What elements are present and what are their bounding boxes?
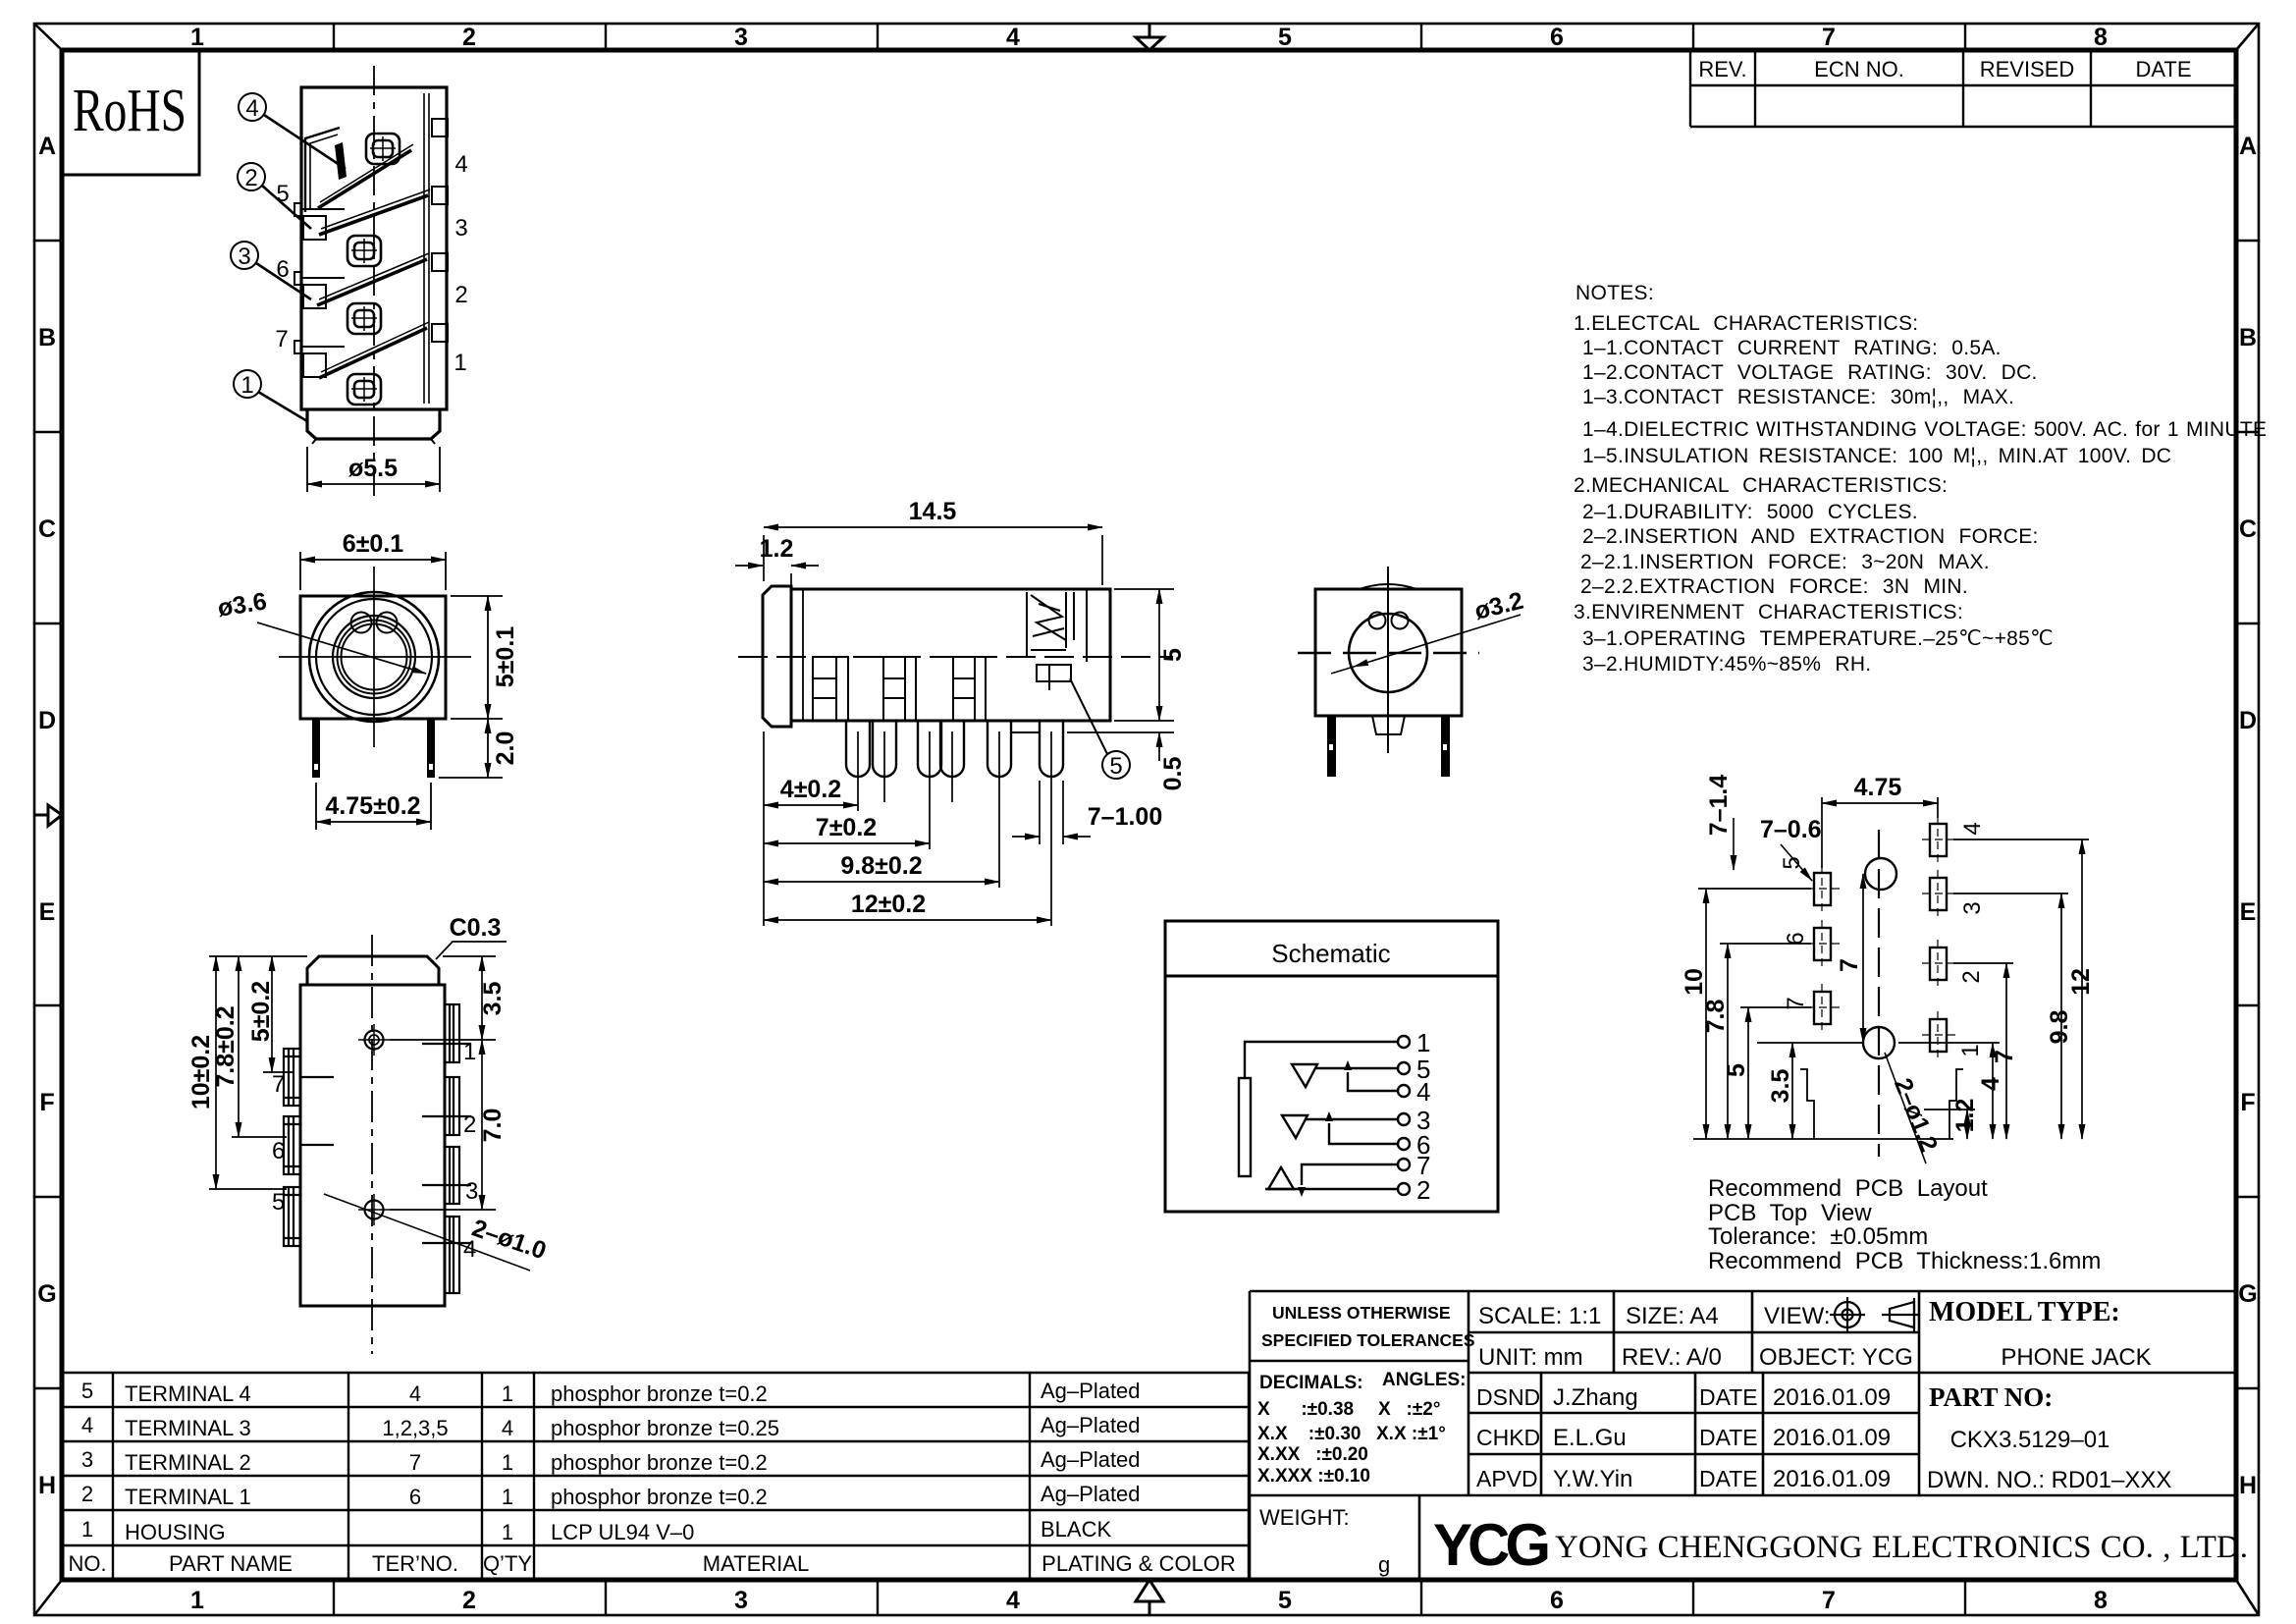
svg-text:3: 3 xyxy=(1959,901,1986,914)
svg-text:6±0.1: 6±0.1 xyxy=(343,530,403,558)
svg-text:6: 6 xyxy=(1550,24,1564,51)
svg-text:10: 10 xyxy=(1681,968,1708,996)
svg-text:9.8: 9.8 xyxy=(2046,1010,2073,1045)
svg-text:1: 1 xyxy=(190,24,204,51)
svg-text:H: H xyxy=(38,1472,56,1499)
svg-text:1: 1 xyxy=(502,1485,513,1509)
svg-text:2–1.DURABILITY: 5000 CYCLES.: 2–1.DURABILITY: 5000 CYCLES. xyxy=(1582,501,1918,523)
svg-text:phosphor bronze t=0.2: phosphor bronze t=0.2 xyxy=(551,1485,768,1509)
svg-text:4: 4 xyxy=(1977,1077,2004,1091)
svg-text:Recommend PCB Thickness:1.6m: Recommend PCB Thickness:1.6mm xyxy=(1708,1248,2101,1274)
svg-text:E: E xyxy=(2240,898,2257,926)
svg-text:2: 2 xyxy=(1958,970,1985,983)
svg-text:D: D xyxy=(38,707,56,734)
svg-text:6: 6 xyxy=(409,1485,421,1509)
svg-text:DATE: DATE xyxy=(1699,1384,1758,1410)
svg-text:Q’TY: Q’TY xyxy=(483,1551,532,1576)
svg-text:14.5: 14.5 xyxy=(909,498,957,525)
svg-text:ANGLES:: ANGLES: xyxy=(1382,1370,1467,1390)
svg-text:X :±0.38: X :±0.38 xyxy=(1257,1399,1354,1420)
svg-text:4: 4 xyxy=(1416,1077,1430,1107)
svg-text:g: g xyxy=(1378,1552,1390,1577)
svg-text:phosphor bronze t=0.25: phosphor bronze t=0.25 xyxy=(551,1416,779,1440)
svg-text:RoHS: RoHS xyxy=(73,78,187,144)
svg-text:TERMINAL 3: TERMINAL 3 xyxy=(125,1416,251,1440)
svg-text:2: 2 xyxy=(462,1587,476,1614)
svg-text:1,2,3,5: 1,2,3,5 xyxy=(382,1416,448,1440)
svg-text:7.8: 7.8 xyxy=(1702,1000,1730,1034)
svg-text:G: G xyxy=(2238,1280,2257,1308)
svg-text:D: D xyxy=(2239,707,2257,734)
svg-text:4: 4 xyxy=(1006,1587,1020,1614)
svg-text:Y.W.Yin: Y.W.Yin xyxy=(1553,1466,1632,1492)
svg-text:3.5: 3.5 xyxy=(1767,1069,1794,1104)
svg-text:7.8±0.2: 7.8±0.2 xyxy=(212,1005,240,1087)
svg-text:C: C xyxy=(2239,515,2257,543)
svg-text:6: 6 xyxy=(1550,1587,1564,1614)
svg-text:8: 8 xyxy=(2094,24,2108,51)
svg-text:WEIGHT:: WEIGHT: xyxy=(1259,1505,1350,1530)
svg-text:X.X :±1°: X.X :±1° xyxy=(1376,1424,1446,1444)
svg-text:7: 7 xyxy=(1822,24,1836,51)
svg-text:4: 4 xyxy=(81,1413,93,1437)
svg-text:ECN NO.: ECN NO. xyxy=(1814,57,1904,81)
svg-text:SIZE: A4: SIZE: A4 xyxy=(1626,1303,1719,1329)
svg-text:YCG: YCG xyxy=(1433,1512,1547,1578)
svg-text:5: 5 xyxy=(1278,24,1292,51)
svg-text:1: 1 xyxy=(502,1381,513,1406)
svg-text:F: F xyxy=(39,1089,54,1116)
svg-text:X.XXX :±0.10: X.XXX :±0.10 xyxy=(1257,1466,1370,1487)
svg-text:6: 6 xyxy=(272,1138,285,1164)
svg-text:3.ENVIRENMENT CHARACTERISTICS: 3.ENVIRENMENT CHARACTERISTICS: xyxy=(1574,601,1963,623)
svg-text:2–2.2.EXTRACTION FORCE: 3N: 2–2.2.EXTRACTION FORCE: 3N MIN. xyxy=(1580,575,1968,598)
svg-text:4.75: 4.75 xyxy=(1854,774,1902,801)
svg-text:DECIMALS:: DECIMALS: xyxy=(1259,1373,1363,1393)
svg-text:1–4.DIELECTRIC WITHSTANDING: 1–4.DIELECTRIC WITHSTANDING VOLTAGE: 500… xyxy=(1582,418,2267,441)
svg-text:Schematic: Schematic xyxy=(1271,939,1390,968)
svg-text:MATERIAL: MATERIAL xyxy=(703,1551,809,1576)
svg-text:E: E xyxy=(39,898,56,926)
svg-text:X :±2°: X :±2° xyxy=(1378,1399,1440,1420)
svg-text:4: 4 xyxy=(502,1416,513,1440)
svg-text:E.L.Gu: E.L.Gu xyxy=(1553,1425,1627,1451)
svg-text:5±0.2: 5±0.2 xyxy=(247,981,275,1042)
svg-text:VIEW:: VIEW: xyxy=(1764,1303,1831,1329)
svg-text:2: 2 xyxy=(462,24,476,51)
svg-text:7: 7 xyxy=(1836,958,1863,972)
svg-text:DSND: DSND xyxy=(1476,1384,1540,1410)
svg-text:1–1.CONTACT CURRENT RATING:: 1–1.CONTACT CURRENT RATING: 0.5A. xyxy=(1582,337,2002,359)
svg-text:2: 2 xyxy=(454,282,467,308)
svg-text:Ag–Plated: Ag–Plated xyxy=(1041,1379,1141,1403)
svg-text:3: 3 xyxy=(734,1587,748,1614)
svg-text:4: 4 xyxy=(454,151,467,178)
svg-text:7: 7 xyxy=(275,326,288,352)
svg-text:MODEL TYPE:: MODEL TYPE: xyxy=(1929,1297,2120,1327)
svg-text:7: 7 xyxy=(1991,1050,2018,1063)
svg-text:Tolerance: ±0.05mm: Tolerance: ±0.05mm xyxy=(1708,1223,1928,1250)
svg-text:HOUSING: HOUSING xyxy=(125,1520,226,1544)
svg-text:C: C xyxy=(38,515,56,543)
svg-text:7: 7 xyxy=(272,1071,285,1098)
svg-text:7–1.00: 7–1.00 xyxy=(1088,803,1162,831)
svg-text:5: 5 xyxy=(272,1189,285,1216)
svg-text:TERMINAL 4: TERMINAL 4 xyxy=(125,1381,251,1406)
svg-text:1: 1 xyxy=(1957,1044,1984,1056)
svg-text:REV.: A/0: REV.: A/0 xyxy=(1622,1344,1722,1371)
svg-text:3–1.OPERATING TEMPERATURE.–25: 3–1.OPERATING TEMPERATURE.–25℃~+85℃ xyxy=(1582,627,2054,650)
svg-text:1: 1 xyxy=(454,350,466,376)
svg-text:PART NO:: PART NO: xyxy=(1929,1382,2053,1412)
svg-text:0.5: 0.5 xyxy=(1159,757,1187,791)
svg-text:2: 2 xyxy=(81,1482,93,1506)
svg-text:PCB Top View: PCB Top View xyxy=(1708,1200,1872,1226)
svg-text:3–2.HUMIDTY:45%~85% RH.: 3–2.HUMIDTY:45%~85% RH. xyxy=(1582,653,1871,676)
svg-text:PART NAME: PART NAME xyxy=(169,1551,293,1576)
svg-text:5: 5 xyxy=(276,181,289,207)
svg-text:1–3.CONTACT RESISTANCE: 30m¦: 1–3.CONTACT RESISTANCE: 30m¦,, MAX. xyxy=(1582,386,2014,408)
svg-text:DWN. NO.: RD01–XXX: DWN. NO.: RD01–XXX xyxy=(1927,1467,2171,1493)
svg-text:REV.: REV. xyxy=(1698,57,1746,81)
svg-text:Ag–Plated: Ag–Plated xyxy=(1041,1447,1141,1472)
svg-text:7±0.2: 7±0.2 xyxy=(816,814,877,841)
svg-text:1: 1 xyxy=(502,1520,513,1544)
svg-text:5: 5 xyxy=(1723,1063,1750,1077)
svg-text:PHONE JACK: PHONE JACK xyxy=(2001,1344,2151,1371)
svg-text:1: 1 xyxy=(1416,1028,1430,1057)
svg-text:7: 7 xyxy=(1822,1587,1836,1614)
svg-text:1: 1 xyxy=(463,1039,476,1065)
svg-text:8: 8 xyxy=(2094,1587,2108,1614)
svg-text:PLATING & COLOR: PLATING & COLOR xyxy=(1041,1551,1236,1576)
svg-text:4: 4 xyxy=(245,95,258,122)
svg-text:7–1.4: 7–1.4 xyxy=(1705,775,1733,837)
svg-text:CKX3.5129–01: CKX3.5129–01 xyxy=(1950,1427,2110,1453)
svg-text:2016.01.09: 2016.01.09 xyxy=(1773,1384,1891,1411)
svg-text:ø5.5: ø5.5 xyxy=(348,455,398,482)
svg-text:APVD: APVD xyxy=(1476,1466,1538,1491)
svg-text:1: 1 xyxy=(190,1587,204,1614)
svg-text:OBJECT: YCG: OBJECT: YCG xyxy=(1759,1344,1913,1371)
svg-text:4: 4 xyxy=(1959,822,1986,835)
svg-text:2–2.INSERTION AND EXTRACTION: 2–2.INSERTION AND EXTRACTION FORCE: xyxy=(1582,525,2039,548)
svg-text:NO.: NO. xyxy=(68,1551,106,1576)
svg-text:2016.01.09: 2016.01.09 xyxy=(1773,1425,1891,1451)
svg-text:4±0.2: 4±0.2 xyxy=(780,776,841,803)
svg-text:TER’NO.: TER’NO. xyxy=(372,1551,458,1576)
svg-text:1.2: 1.2 xyxy=(1951,1099,1979,1133)
svg-text:X.X :±0.30: X.X :±0.30 xyxy=(1257,1424,1361,1444)
svg-text:A: A xyxy=(38,133,56,160)
svg-text:C0.3: C0.3 xyxy=(450,914,502,942)
svg-text:1: 1 xyxy=(502,1450,513,1475)
svg-text:5±0.1: 5±0.1 xyxy=(492,626,519,687)
svg-text:BLACK: BLACK xyxy=(1041,1517,1111,1542)
svg-text:4.75±0.2: 4.75±0.2 xyxy=(325,792,420,820)
svg-text:2016.01.09: 2016.01.09 xyxy=(1773,1466,1891,1492)
svg-text:Recommend PCB Layout: Recommend PCB Layout xyxy=(1708,1175,1988,1202)
svg-text:YONG CHENGGONG ELECTRONICS: YONG CHENGGONG ELECTRONICS CO. , LTD. xyxy=(1555,1530,2248,1565)
svg-text:Ag–Plated: Ag–Plated xyxy=(1041,1413,1141,1437)
svg-text:2.MECHANICAL CHARACTERISTICS:: 2.MECHANICAL CHARACTERISTICS: xyxy=(1574,474,1948,497)
svg-text:3: 3 xyxy=(81,1447,93,1472)
svg-text:2: 2 xyxy=(244,165,257,191)
svg-text:3: 3 xyxy=(734,24,748,51)
svg-text:CHKD: CHKD xyxy=(1476,1425,1540,1450)
svg-text:phosphor bronze t=0.2: phosphor bronze t=0.2 xyxy=(551,1381,768,1406)
svg-text:3.5: 3.5 xyxy=(479,982,507,1016)
svg-text:2: 2 xyxy=(463,1111,476,1138)
svg-text:9.8±0.2: 9.8±0.2 xyxy=(840,852,922,880)
svg-text:1–2.CONTACT VOLTAGE RATING:: 1–2.CONTACT VOLTAGE RATING: 30V. DC. xyxy=(1582,361,2038,384)
svg-text:DATE: DATE xyxy=(1699,1466,1758,1491)
svg-text:UNLESS OTHERWISE: UNLESS OTHERWISE xyxy=(1272,1303,1451,1323)
svg-text:H: H xyxy=(2239,1472,2257,1499)
svg-text:SPECIFIED TOLERANCES: SPECIFIED TOLERANCES xyxy=(1261,1330,1475,1350)
svg-text:1.ELECTCAL CHARACTERISTICS:: 1.ELECTCAL CHARACTERISTICS: xyxy=(1574,312,1918,335)
svg-text:NOTES:: NOTES: xyxy=(1575,282,1654,304)
svg-text:2: 2 xyxy=(1416,1175,1430,1205)
svg-text:LCP UL94 V–0: LCP UL94 V–0 xyxy=(551,1520,694,1544)
svg-text:12±0.2: 12±0.2 xyxy=(851,891,926,918)
svg-text:TERMINAL 1: TERMINAL 1 xyxy=(125,1485,251,1509)
svg-text:6: 6 xyxy=(276,256,289,283)
svg-text:10±0.2: 10±0.2 xyxy=(187,1035,215,1110)
svg-text:4: 4 xyxy=(409,1381,421,1406)
svg-text:1: 1 xyxy=(81,1517,93,1542)
svg-text:TERMINAL 2: TERMINAL 2 xyxy=(125,1450,251,1475)
svg-text:12: 12 xyxy=(2067,968,2095,996)
svg-text:7.0: 7.0 xyxy=(479,1109,507,1143)
svg-text:X.XX :±0.20: X.XX :±0.20 xyxy=(1257,1444,1368,1465)
svg-text:5: 5 xyxy=(1159,648,1187,662)
svg-text:2.0: 2.0 xyxy=(492,731,519,766)
svg-text:1.2: 1.2 xyxy=(760,535,794,563)
svg-text:Ag–Plated: Ag–Plated xyxy=(1041,1482,1141,1506)
svg-text:3: 3 xyxy=(238,244,250,270)
svg-text:5: 5 xyxy=(81,1379,93,1403)
svg-text:phosphor bronze t=0.2: phosphor bronze t=0.2 xyxy=(551,1450,768,1475)
svg-text:5: 5 xyxy=(1278,1587,1292,1614)
svg-text:F: F xyxy=(2240,1089,2255,1116)
svg-text:5: 5 xyxy=(1109,753,1122,780)
svg-text:1–5.INSULATION RESISTANCE: 1: 1–5.INSULATION RESISTANCE: 100 M¦,, MIN.… xyxy=(1582,445,2171,467)
svg-text:2–2.1.INSERTION FORCE: 3: 2–2.1.INSERTION FORCE: 3~20N MAX. xyxy=(1580,551,1990,573)
svg-text:G: G xyxy=(37,1280,56,1308)
svg-text:B: B xyxy=(38,324,56,352)
svg-text:A: A xyxy=(2239,133,2257,160)
svg-text:B: B xyxy=(2239,324,2257,352)
svg-text:REVISED: REVISED xyxy=(1980,57,2075,81)
svg-text:SCALE: 1:1: SCALE: 1:1 xyxy=(1478,1303,1601,1329)
svg-text:3: 3 xyxy=(465,1178,478,1205)
svg-text:4: 4 xyxy=(1006,24,1020,51)
svg-text:J.Zhang: J.Zhang xyxy=(1553,1384,1638,1411)
svg-text:UNIT: mm: UNIT: mm xyxy=(1478,1344,1583,1371)
svg-text:1: 1 xyxy=(240,372,253,399)
svg-text:7: 7 xyxy=(409,1450,421,1475)
svg-text:DATE: DATE xyxy=(1699,1425,1758,1450)
svg-text:DATE: DATE xyxy=(2135,57,2191,81)
svg-text:7–0.6: 7–0.6 xyxy=(1760,816,1822,843)
svg-text:3: 3 xyxy=(454,215,467,242)
